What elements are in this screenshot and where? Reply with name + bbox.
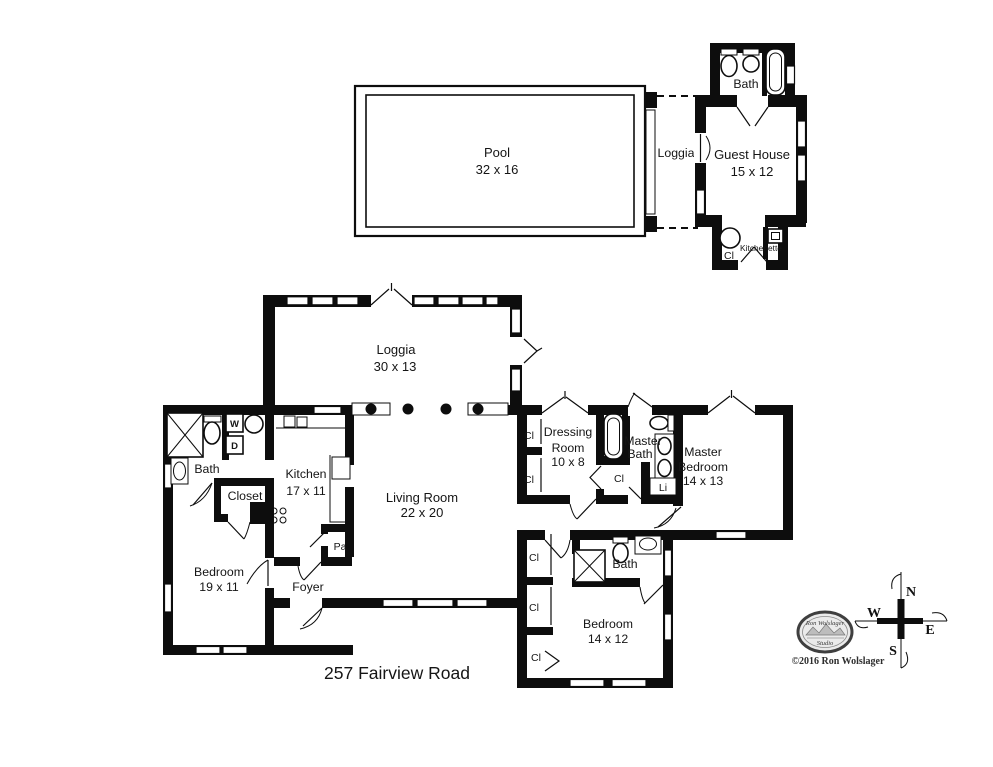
- closet-label: Cl: [524, 430, 534, 442]
- guest-house: Bath Guest House 15 x 12 Cl Kitchenette: [694, 43, 807, 271]
- linen-label: Li: [659, 482, 667, 494]
- pool-loggia: Loggia: [644, 92, 698, 232]
- window: [716, 532, 746, 539]
- compass-flourish: [901, 652, 908, 668]
- dressing-door-arc: [570, 504, 577, 519]
- compass-ew-bar: [877, 618, 923, 624]
- utility-sink-icon: [245, 415, 263, 433]
- living-room-dims: 22 x 20: [401, 505, 444, 520]
- sink-icon: [174, 462, 186, 480]
- bedroom-left-dims: 19 x 11: [199, 580, 239, 594]
- compass-flourish: [932, 613, 947, 621]
- closet-label: Cl: [529, 602, 539, 614]
- floor-plan-drawing: Pool 32 x 16 Loggia: [0, 0, 993, 767]
- closet-label: Closet: [228, 489, 263, 503]
- closet-door-arc: [244, 522, 250, 539]
- window: [798, 155, 806, 181]
- dryer-label: D: [231, 441, 238, 452]
- compass-west-label: W: [867, 606, 881, 621]
- loggia-columns: [352, 403, 508, 415]
- pool-loggia-label: Loggia: [658, 146, 695, 160]
- window: [486, 297, 498, 305]
- loggia-dims: 30 x 13: [374, 359, 417, 374]
- pantry-label: Pa: [334, 541, 347, 553]
- sink-icon: [743, 49, 759, 55]
- window: [787, 66, 795, 84]
- closet-label: Cl: [529, 552, 539, 564]
- window: [383, 600, 413, 607]
- closet-door-leaf: [228, 522, 244, 539]
- window: [314, 407, 341, 414]
- bedroom-left-label: Bedroom: [194, 565, 244, 579]
- window: [165, 584, 172, 612]
- closet-label: Cl: [614, 473, 624, 485]
- compass-flourish: [855, 621, 868, 628]
- kitchen-sink-icon: [297, 417, 307, 427]
- guest-bath-label: Bath: [733, 77, 758, 91]
- bath-door-leaf: [193, 483, 212, 505]
- window: [337, 297, 358, 305]
- window: [438, 297, 459, 305]
- dressing-door-leaf: [577, 499, 596, 519]
- dressing-room-dims: 10 x 8: [551, 455, 585, 469]
- compass-icon: N W E S: [855, 572, 947, 668]
- french-door-swing: [524, 339, 542, 363]
- window: [462, 297, 483, 305]
- master-bath-door-leaf: [629, 487, 641, 499]
- bedroom-right-label: Bedroom: [583, 617, 633, 631]
- closet-label: Cl: [524, 474, 534, 486]
- washer-label: W: [230, 419, 239, 430]
- bedroom-door-leaf: [545, 540, 561, 558]
- master-bedroom-dims: 14 x 13: [683, 474, 723, 488]
- kitchen-door-arc: [298, 566, 304, 580]
- window: [697, 190, 705, 214]
- stove-burner-icon: [280, 508, 286, 514]
- loggia-label: Loggia: [376, 342, 416, 357]
- toilet-icon: [204, 416, 221, 422]
- compass-flourish: [892, 574, 901, 589]
- toilet-icon: [721, 49, 737, 55]
- pantry-door-leaf: [310, 532, 325, 547]
- guest-house-label: Guest House: [714, 147, 790, 162]
- window: [312, 297, 333, 305]
- bath-door-leaf: [644, 585, 663, 604]
- compass-east-label: E: [925, 623, 934, 638]
- pool: Pool 32 x 16: [355, 86, 645, 236]
- closet-door-swing: [545, 651, 559, 671]
- window: [570, 680, 604, 687]
- master-bedroom-label2: Bedroom: [678, 460, 728, 474]
- living-room-label: Living Room: [386, 490, 458, 505]
- studio-logo: Ron Wolslager Studio: [798, 612, 852, 652]
- main-house: Loggia 30 x 13 Living Room 22 x 20 Kitch…: [163, 283, 793, 688]
- kitchen-label: Kitchen: [285, 467, 326, 481]
- master-bedroom-label: Master: [684, 445, 722, 459]
- bedroom-door-arc: [247, 560, 268, 584]
- column-icon: [441, 404, 452, 415]
- column-icon: [366, 404, 377, 415]
- foyer-label: Foyer: [292, 580, 323, 594]
- guest-closet-label: Cl: [724, 250, 734, 262]
- kitchen-sink-icon: [284, 416, 295, 427]
- master-bedroom-door-arc: [654, 508, 676, 528]
- guest-house-dims: 15 x 12: [731, 164, 774, 179]
- compass-south-label: S: [889, 644, 897, 659]
- sink-icon: [658, 460, 671, 477]
- bathtub-icon: [770, 53, 782, 91]
- logo-name: Ron Wolslager: [805, 620, 845, 627]
- kitchenette-label: Kitchenette: [740, 243, 782, 253]
- copyright-text: ©2016 Ron Wolslager: [792, 656, 885, 667]
- kitchenette-sink-icon: [772, 233, 780, 240]
- window: [414, 297, 434, 305]
- logo-sub: Studio: [817, 640, 834, 647]
- window: [165, 464, 172, 488]
- window: [512, 309, 521, 333]
- toilet-icon: [613, 537, 628, 543]
- window: [196, 647, 220, 654]
- window: [798, 121, 806, 147]
- window: [417, 600, 453, 607]
- bath2-label: Bath: [612, 557, 637, 571]
- master-bath-label: Master: [624, 434, 662, 448]
- window: [665, 550, 672, 576]
- master-bath-label2: Bath: [627, 447, 652, 461]
- closet-label: Cl: [531, 652, 541, 664]
- window: [512, 369, 521, 391]
- dressing-room-label2: Room: [552, 441, 585, 455]
- closet-door-swing: [590, 466, 601, 489]
- column-icon: [403, 404, 414, 415]
- pool-water-edge: [366, 95, 634, 227]
- pool-dims: 32 x 16: [476, 162, 519, 177]
- compass-north-label: N: [906, 585, 916, 600]
- bath-door-arc: [640, 587, 645, 603]
- bathtub-icon: [608, 418, 620, 455]
- pool-label: Pool: [484, 145, 510, 160]
- window: [223, 647, 247, 654]
- window: [612, 680, 646, 687]
- toilet-icon: [668, 415, 674, 431]
- dressing-room-label: Dressing: [544, 425, 593, 439]
- bedroom-door-arc: [561, 540, 570, 558]
- bath-door-swing: [737, 107, 768, 126]
- stove-burner-icon: [280, 517, 286, 523]
- sink-icon: [743, 56, 759, 72]
- address-title: 257 Fairview Road: [324, 663, 470, 683]
- column-icon: [473, 404, 484, 415]
- floor-plan-page: Pool 32 x 16 Loggia: [0, 0, 993, 767]
- toilet-icon: [650, 417, 668, 430]
- water-heater-icon: [720, 228, 740, 248]
- bedroom-right-dims: 14 x 12: [588, 632, 628, 646]
- master-bedroom-door-leaf: [658, 507, 681, 527]
- window: [665, 614, 672, 640]
- bath-label: Bath: [194, 462, 219, 476]
- window: [457, 600, 487, 607]
- toilet-icon: [204, 422, 220, 444]
- kitchen-dims: 17 x 11: [286, 484, 326, 498]
- refrigerator-icon: [332, 457, 350, 479]
- loggia-screen: [646, 110, 655, 214]
- sink-icon: [640, 538, 657, 550]
- window: [287, 297, 308, 305]
- kitchen-door-leaf: [304, 562, 321, 580]
- toilet-icon: [721, 56, 737, 77]
